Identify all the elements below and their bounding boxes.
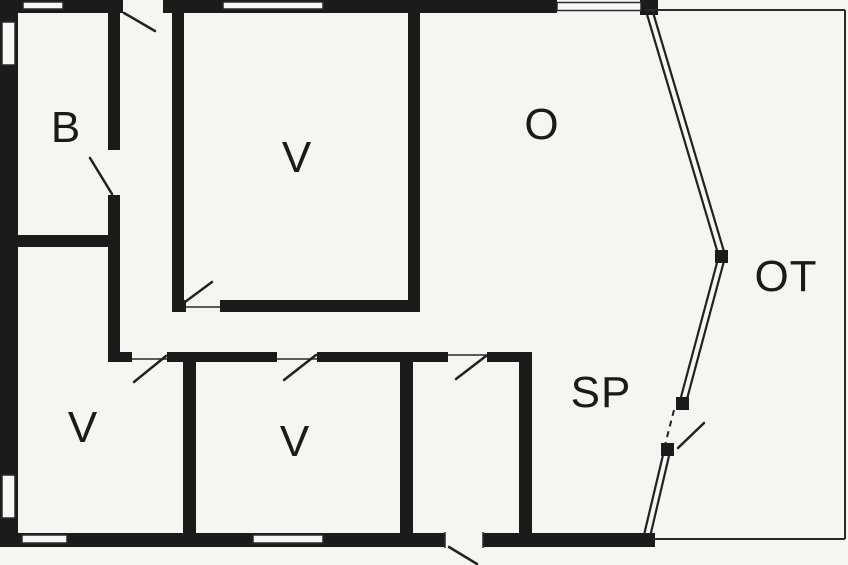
wall-b-right-upper xyxy=(108,13,120,150)
room-label-v-middle: V xyxy=(280,417,310,466)
wall-b-right-lower xyxy=(108,195,120,362)
wall-vleft-vmid xyxy=(183,352,196,533)
room-label-o: O xyxy=(524,100,559,149)
room-label-v-main: V xyxy=(282,133,312,182)
room-label-sp: SP xyxy=(571,368,632,417)
window-left-upper xyxy=(2,22,15,65)
window-bottom-left xyxy=(22,535,67,543)
wall-b-bottom xyxy=(14,235,120,247)
window-top-left xyxy=(23,2,63,9)
room-label-b: B xyxy=(51,103,81,152)
window-left-lower xyxy=(2,475,15,518)
room-label-v-left: V xyxy=(68,403,98,452)
plan-background xyxy=(0,0,848,565)
room-label-ot: OT xyxy=(754,252,817,301)
terrace-door-jamb-bottom xyxy=(661,443,674,456)
window-top-v-room xyxy=(223,2,323,9)
wall-corridor-2 xyxy=(317,352,448,362)
wall-top-main xyxy=(163,0,557,13)
opening-exterior-bottom xyxy=(445,531,483,549)
window-top-living xyxy=(557,3,641,11)
glazing-bend-anchor xyxy=(715,250,728,263)
wall-bottom xyxy=(0,533,655,547)
window-bottom-middle xyxy=(253,535,323,543)
wall-v-main-left xyxy=(172,13,184,312)
wall-left xyxy=(0,0,18,547)
wall-corridor-stub xyxy=(108,352,132,362)
floor-plan-page: B V O OT V V SP xyxy=(0,0,848,565)
wall-vmid-small xyxy=(400,352,413,533)
wall-small-sp xyxy=(519,352,532,533)
wall-v-main-right xyxy=(408,13,420,312)
floor-plan-svg: B V O OT V V SP xyxy=(0,0,848,565)
wall-v-main-bottom xyxy=(220,300,420,312)
glazing-top-anchor xyxy=(640,0,658,15)
terrace-door-jamb-top xyxy=(676,397,689,410)
